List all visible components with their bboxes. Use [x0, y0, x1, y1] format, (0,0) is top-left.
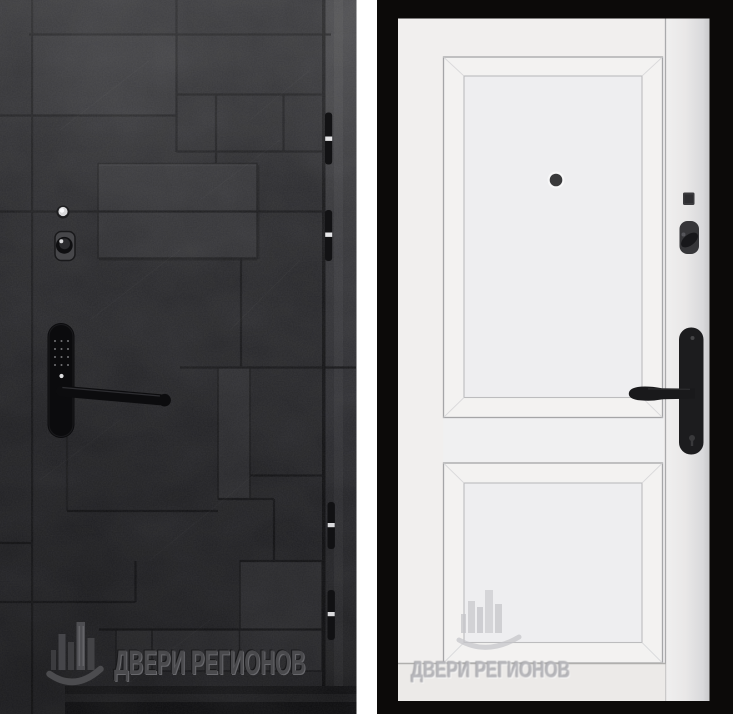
svg-text:ДВЕРИ РЕГИОНОВ: ДВЕРИ РЕГИОНОВ	[114, 644, 306, 682]
svg-text:ДВЕРИ РЕГИОНОВ: ДВЕРИ РЕГИОНОВ	[411, 657, 570, 683]
